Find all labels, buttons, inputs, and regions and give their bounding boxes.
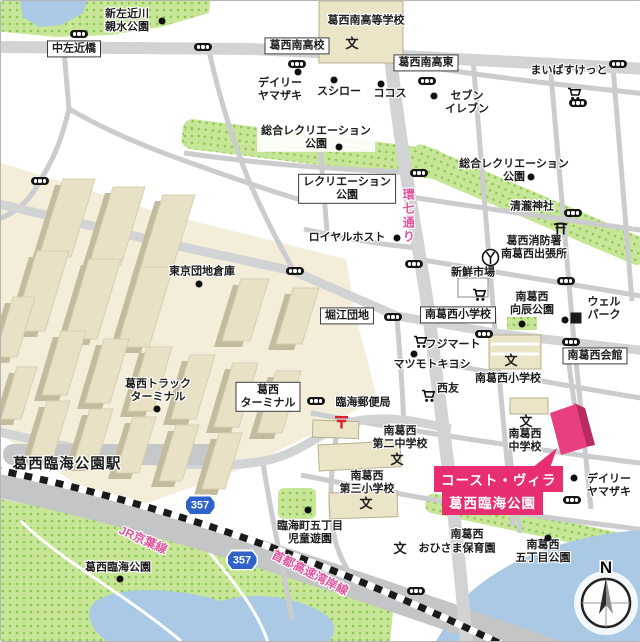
poi-dot-icon — [154, 406, 161, 413]
fuji-mart-label: フジマート — [426, 338, 481, 351]
shinsen-ichiba-label: 新鮮市場 — [451, 266, 495, 279]
poi-dot-icon — [295, 69, 302, 76]
poi-dot-icon — [528, 174, 535, 181]
mybasket-label: まいばすけっと — [531, 64, 608, 77]
traffic-signal-icon — [384, 313, 402, 321]
minami-kasai-sho-intersection-label: 南葛西小学校 — [420, 306, 496, 323]
poi-dot-icon — [159, 18, 166, 25]
traffic-signal-icon — [410, 169, 428, 177]
dai2-junior-high-label: 南葛西 第二中学校 — [373, 425, 428, 451]
poi-dot-icon — [411, 351, 418, 358]
traffic-signal-icon — [405, 260, 423, 268]
map-canvas: N 新左近川 親水公園中左近橋葛西南高等学校葛西南高校葛西南高東まいばすけっとデ… — [0, 0, 640, 642]
daily-yamazaki-south-label: デイリー ヤマザキ — [587, 473, 631, 499]
poi-dot-icon — [562, 317, 569, 324]
seiryu-jinja-label: 清瀧神社 — [510, 200, 554, 213]
school-mark-kasai-minami: 文 — [345, 36, 358, 52]
traffic-signal-icon — [307, 397, 325, 405]
mukaitatsu-park-label: 南葛西 向辰公園 — [510, 291, 554, 317]
traffic-signal-icon — [418, 77, 436, 85]
matsumoto-kiyoshi-label: マツモトキヨシ — [394, 358, 471, 371]
traffic-signal-icon — [407, 587, 425, 595]
traffic-signal-icon — [562, 338, 580, 346]
recreation-park-label: レクリエーション 公園 — [298, 174, 396, 204]
daily-yamazaki-north-label: デイリー ヤマザキ — [258, 77, 302, 103]
poi-dot-icon — [331, 77, 338, 84]
school-mark-dai3-sho: 文 — [359, 496, 372, 512]
kannana-dori-road-label: 環七通り — [401, 188, 415, 244]
naka-sakonbashi-label: 中左近橋 — [47, 40, 101, 57]
traffic-signal-icon — [288, 60, 306, 68]
traffic-signal-icon — [475, 330, 493, 338]
traffic-signal-icon — [194, 43, 212, 51]
ohisama-nursery-line2-label: おひさま保育園 — [419, 542, 496, 555]
poi-dot-icon — [519, 321, 526, 328]
minami-kasai-junior-high-label: 南葛西 中学校 — [509, 428, 542, 454]
cocos-label: ココス — [374, 87, 407, 100]
rinkai-cho-jido-yuen-label: 臨海町五丁目 児童遊園 — [277, 520, 343, 546]
kasai-fire-station-label: 葛西消防署 南葛西出張所 — [501, 235, 567, 261]
target-property-label-line2: 葛西臨海公園 — [442, 489, 543, 515]
traffic-signal-icon — [564, 209, 582, 217]
kasai-truck-terminal-label: 葛西トラック ターミナル — [125, 378, 191, 404]
poi-dot-icon — [394, 235, 401, 242]
kasai-rinkai-park-station-label: 葛西臨海公園駅 — [13, 456, 122, 473]
traffic-signal-icon — [286, 267, 304, 275]
seiyu-label: 西友 — [437, 382, 459, 395]
store-building-icon — [571, 313, 582, 324]
ohisama-nursery-line1-label: 南葛西 — [451, 528, 484, 541]
school-mark-dai2-chu: 文 — [390, 452, 403, 468]
royal-host-label: ロイヤルホスト — [309, 231, 386, 244]
kasai-rinkai-park-label: 葛西臨海公園 — [85, 561, 151, 574]
seven-eleven-label: セブン イレブン — [445, 90, 489, 116]
map-labels-layer: 新左近川 親水公園中左近橋葛西南高等学校葛西南高校葛西南高東まいばすけっとデイリ… — [1, 1, 640, 641]
school-mark-minami-kasai-chu: 文 — [519, 414, 532, 430]
poi-dot-icon — [378, 81, 385, 88]
route-357-shield: 357 — [184, 495, 216, 516]
sogo-recreation-park-east-label: 総合レクリエーション 公園 — [459, 158, 569, 184]
poi-dot-icon — [571, 475, 578, 482]
school-mark-ohisama: 文 — [393, 541, 406, 557]
kasai-minami-koko-intersection-label: 葛西南高校 — [265, 37, 330, 54]
tokyo-danchi-soko-label: 東京団地倉庫 — [169, 265, 235, 278]
school-mark-minami-kasai-sho: 文 — [504, 353, 517, 369]
poi-dot-icon — [305, 507, 312, 514]
poi-dot-icon — [117, 576, 124, 583]
traffic-signal-icon — [31, 177, 49, 185]
gochome-park-label: 南葛西 五丁目公園 — [516, 539, 571, 565]
poi-dot-icon — [336, 144, 343, 151]
minami-kasai-kaikan-label: 南葛西会館 — [563, 347, 628, 364]
poi-dot-icon — [545, 535, 552, 542]
poi-dot-icon — [431, 93, 438, 100]
route-357-shield: 357 — [226, 550, 258, 571]
jr-keiyo-line-label: JR京葉線 — [117, 523, 170, 557]
sushiro-label: スシロー — [317, 85, 361, 98]
shuto-expressway-wangan-label: 首都高速湾岸線 — [269, 548, 350, 599]
poi-dot-icon — [196, 281, 203, 288]
rinkai-post-office-label: 臨海郵便局 — [336, 396, 391, 409]
well-park-label: ウェル パーク — [588, 296, 621, 322]
traffic-signal-icon — [70, 30, 88, 38]
traffic-signal-icon — [609, 60, 627, 68]
dai3-elementary-label: 南葛西 第三小学校 — [340, 470, 395, 496]
shin-sakongawa-park-label: 新左近川 親水公園 — [105, 8, 149, 34]
traffic-signal-icon — [563, 496, 581, 504]
sogo-recreation-park-west-label: 総合レクリエーション 公園 — [257, 124, 375, 152]
kasai-terminal-label: 葛西 ターミナル — [236, 382, 301, 412]
traffic-signal-icon — [557, 277, 575, 285]
kasai-minami-higashi-intersection-label: 葛西南高東 — [394, 54, 459, 71]
minami-kasai-elementary-label: 南葛西小学校 — [475, 372, 541, 385]
kasai-minami-highschool-label: 葛西南高等学校 — [328, 14, 405, 27]
horie-danchi-label: 堀江団地 — [320, 307, 374, 324]
